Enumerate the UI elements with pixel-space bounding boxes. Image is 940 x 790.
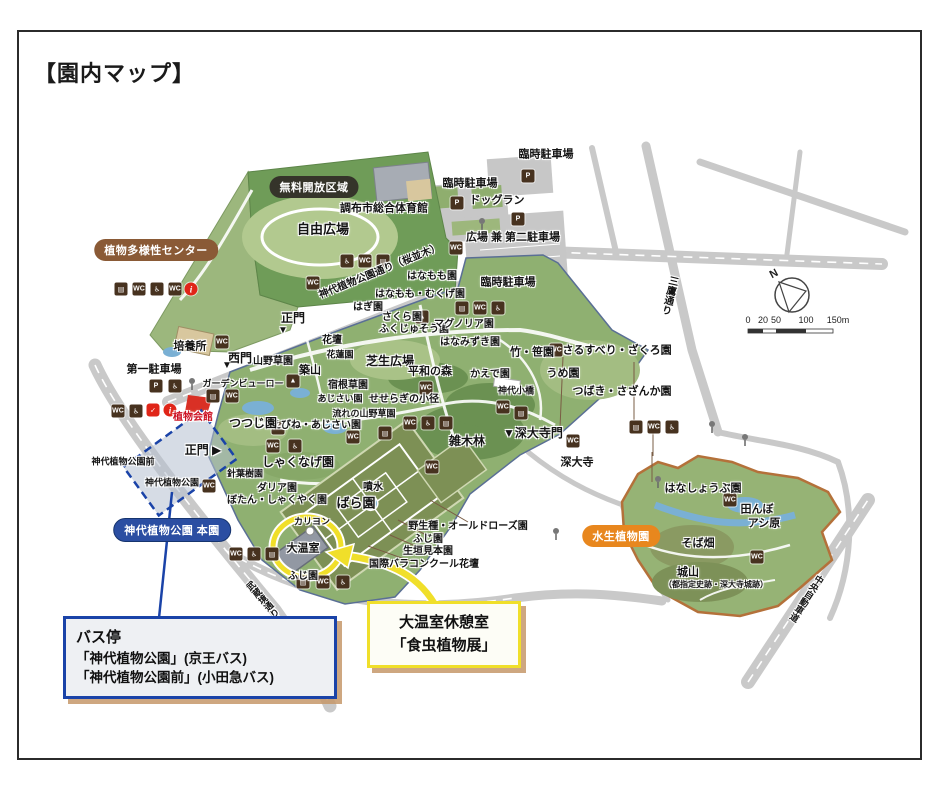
badge-free-open-area: 無料開放区域 [270,176,359,198]
bus-stop-callout-line: 「神代植物公園」(京王バス) [76,649,324,669]
greenhouse-callout-title: 大温室休憩室 [374,612,514,635]
scale-tick-label: 150m [827,315,850,325]
badge-plant-diversity-center: 植物多様性センター [94,239,218,261]
greenhouse-callout-line: 「食虫植物展」 [374,635,514,658]
badge-aquatic-garden: 水生植物園 [582,525,660,547]
page-title: 【園内マップ】 [34,56,195,88]
scale-tick-label: 20 [758,315,768,325]
scale-tick-label: 100 [798,315,813,325]
badge-jindai-main-garden: 神代植物公園 本園 [113,518,231,542]
bus-stop-callout: バス停 「神代植物公園」(京王バス) 「神代植物公園前」(小田急バス) [63,616,337,699]
scale-tick-label: 50 [771,315,781,325]
scale-tick-label: 0 [745,315,750,325]
bus-stop-callout-line: 「神代植物公園前」(小田急バス) [76,668,324,688]
bus-stop-callout-title: バス停 [76,627,324,649]
greenhouse-exhibit-callout: 大温室休憩室 「食虫植物展」 [367,601,521,668]
